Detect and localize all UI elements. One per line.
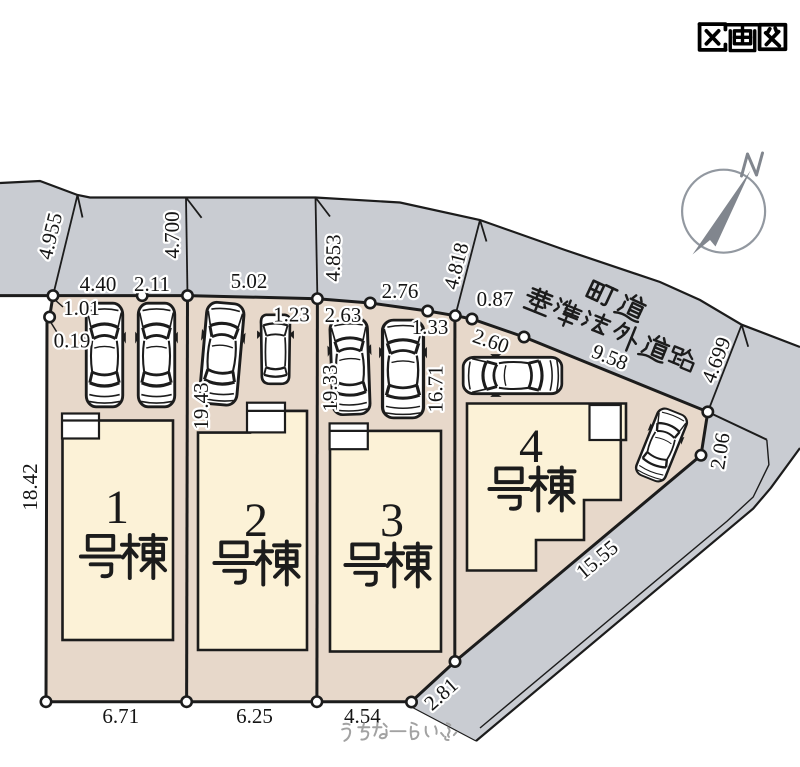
svg-text:3: 3 xyxy=(380,494,404,547)
svg-text:4.40: 4.40 xyxy=(80,272,117,296)
svg-text:4.853: 4.853 xyxy=(321,234,346,282)
svg-text:0.87: 0.87 xyxy=(477,287,514,311)
svg-text:0.19: 0.19 xyxy=(54,329,91,353)
svg-text:6.25: 6.25 xyxy=(236,704,273,728)
svg-text:19.33: 19.33 xyxy=(318,364,342,411)
svg-text:2.76: 2.76 xyxy=(382,279,419,303)
svg-text:19.43: 19.43 xyxy=(189,382,213,429)
svg-text:1.33: 1.33 xyxy=(412,315,449,339)
svg-text:4.700: 4.700 xyxy=(160,211,184,258)
svg-text:1: 1 xyxy=(105,481,129,534)
svg-text:2: 2 xyxy=(244,494,268,547)
svg-text:16.71: 16.71 xyxy=(424,365,448,412)
svg-text:1.01: 1.01 xyxy=(63,296,100,320)
svg-text:5.02: 5.02 xyxy=(231,269,268,293)
svg-text:2.11: 2.11 xyxy=(134,272,170,296)
svg-text:4: 4 xyxy=(519,420,543,473)
svg-text:18.42: 18.42 xyxy=(18,463,42,510)
svg-text:2.63: 2.63 xyxy=(325,303,362,327)
svg-text:1.23: 1.23 xyxy=(273,303,310,327)
svg-text:6.71: 6.71 xyxy=(102,704,139,728)
